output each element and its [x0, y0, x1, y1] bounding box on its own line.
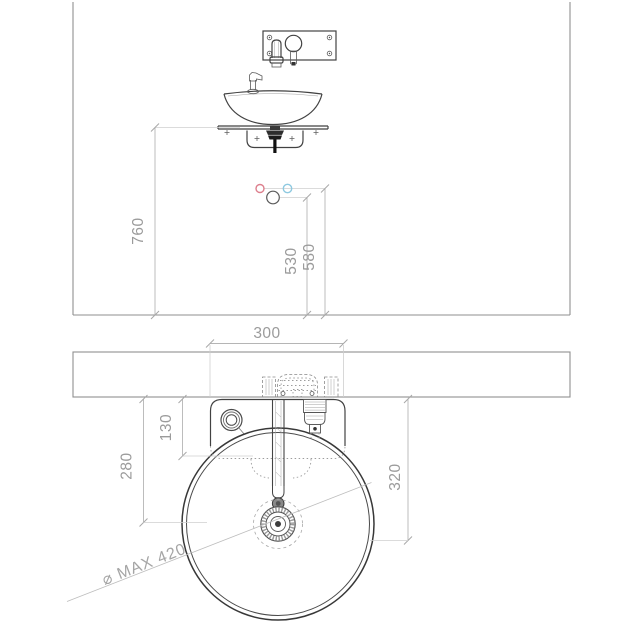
dim-label-280: 280 — [119, 452, 136, 479]
room-outline — [73, 2, 570, 315]
connection-points — [256, 184, 325, 204]
dim-label-300: 300 — [253, 325, 280, 342]
dim-label-530: 530 — [283, 247, 300, 274]
wall-section — [73, 352, 570, 397]
front-elevation-view: 760 530 580 — [73, 2, 570, 319]
dim-label-320: 320 — [387, 463, 404, 490]
waste-outlet-icon — [267, 191, 280, 204]
dimension-580: 580 — [301, 185, 329, 320]
dim-label-max-420: ⌀ MAX 420 — [100, 541, 189, 589]
dimension-760: 760 — [130, 124, 240, 320]
dimension-320: 320 — [370, 395, 412, 545]
concealed-mixer-body — [263, 375, 339, 398]
mixer-spout-icon — [270, 40, 283, 67]
waste-fitting-icon — [266, 126, 284, 154]
technical-drawing-page: 760 530 580 300 — [0, 0, 630, 630]
dim-label-760: 760 — [130, 217, 147, 244]
dimension-300: 300 — [206, 325, 348, 397]
dim-label-580: 580 — [301, 243, 318, 270]
mixer-handle-icon — [285, 35, 301, 65]
vessel-basin — [224, 73, 322, 125]
mixer-trim-plate — [263, 31, 336, 67]
plan-view: 300 — [67, 325, 570, 620]
dim-label-130: 130 — [158, 414, 175, 441]
hot-water-icon — [256, 185, 264, 193]
